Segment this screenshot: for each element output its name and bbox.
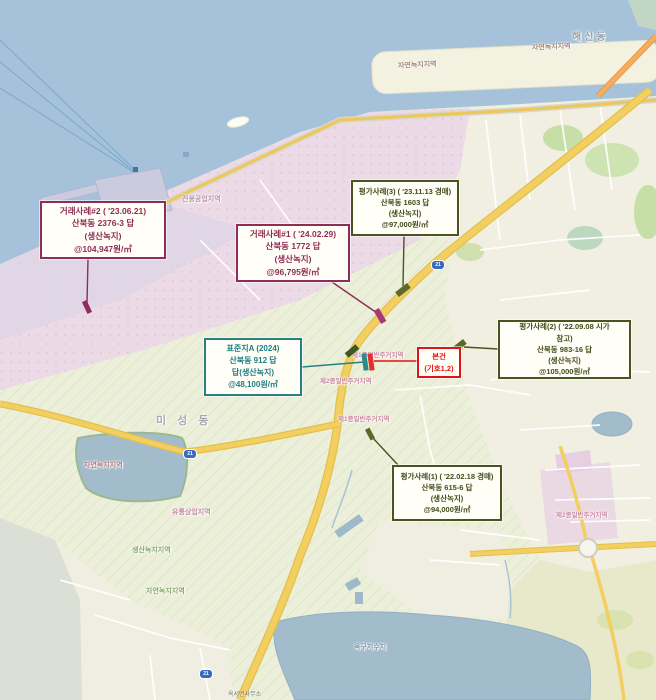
appraisal-case-2-line-5: @105,000원/㎡ (539, 366, 590, 377)
tx-case-2-line-3: (생산녹지) (85, 230, 122, 243)
appraisal-case-2-line-3: 산북동 983-16 답 (537, 344, 592, 355)
appraisal-case-3-line-4: @97,000원/㎡ (382, 219, 429, 230)
subject-property-line-2: (기호1,2) (424, 363, 453, 374)
map-viewport[interactable]: 자연녹지지역자연녹지지역해신동전용공업지역자연녹지지역유통상업지역생산녹지지역자… (0, 0, 656, 700)
appraisal-case-2-line-2: 참고) (556, 333, 572, 344)
tx-case-1-line-4: @96,795원/㎡ (267, 266, 320, 279)
port-facility (133, 167, 138, 172)
standard-lot-A-line-2: 산북동 912 답 (229, 355, 276, 367)
standard-lot-A-line-4: @48,100원/㎡ (228, 379, 278, 391)
tx-case-1-line-1: 거래사례#1 ( '24.02.29) (250, 228, 336, 241)
tx-case-2-line-1: 거래사례#2 ( '23.06.21) (60, 205, 146, 218)
pond (355, 592, 363, 604)
appraisal-case-2-line-1: 평가사례(2) ( '22.09.08 시가 (519, 321, 609, 332)
appraisal-case-1-line-1: 평가사례(1) ( '22.02.18 경매) (401, 471, 494, 482)
appraisal-case-3-line-3: (생산녹지) (389, 208, 422, 219)
tx-case-2-line-2: 산북동 2376-3 답 (72, 217, 134, 230)
offshore-structure (183, 152, 189, 157)
appraisal-case-2-callout: 평가사례(2) ( '22.09.08 시가참고)산북동 983-16 답(생산… (498, 320, 631, 379)
standard-lot-A-line-1: 표준지A (2024) (227, 343, 280, 355)
appraisal-case-1-line-2: 산북동 615-6 답 (422, 482, 473, 493)
grove (626, 651, 654, 669)
subject-property-line-1: 본건 (432, 351, 446, 362)
tx-case-1-callout: 거래사례#1 ( '24.02.29)산북동 1772 답(생산녹지)@96,7… (236, 224, 350, 282)
tx-case-2-line-4: @104,947원/㎡ (74, 243, 132, 256)
appraisal-case-1-callout: 평가사례(1) ( '22.02.18 경매)산북동 615-6 답(생산녹지)… (392, 465, 502, 521)
appraisal-case-3-callout: 평가사례(3) ( '23.11.13 경매)산북동 1603 답(생산녹지)@… (351, 180, 459, 236)
pond-east (592, 412, 632, 436)
standard-lot-A-callout: 표준지A (2024)산북동 912 답답(생산녹지)@48,100원/㎡ (204, 338, 302, 396)
appraisal-case-3-line-2: 산북동 1603 답 (381, 197, 429, 208)
tx-case-1-line-3: (생산녹지) (275, 253, 312, 266)
grove (597, 610, 633, 630)
tx-case-1-line-2: 산북동 1772 답 (266, 240, 321, 253)
appraisal-case-1-line-4: @94,000원/㎡ (424, 504, 471, 515)
appraisal-case-2-line-4: (생산녹지) (548, 355, 581, 366)
standard-lot-A-line-3: 답(생산녹지) (232, 367, 274, 379)
tx-case-2-callout: 거래사례#2 ( '23.06.21)산북동 2376-3 답(생산녹지)@10… (40, 201, 166, 259)
subject-property-callout: 본건(기호1,2) (417, 347, 461, 378)
park-area (585, 143, 639, 177)
appraisal-case-1-line-3: (생산녹지) (431, 493, 464, 504)
reservoir-west (76, 433, 187, 502)
interchange (579, 539, 597, 557)
appraisal-case-3-line-1: 평가사례(3) ( '23.11.13 경매) (359, 186, 451, 197)
